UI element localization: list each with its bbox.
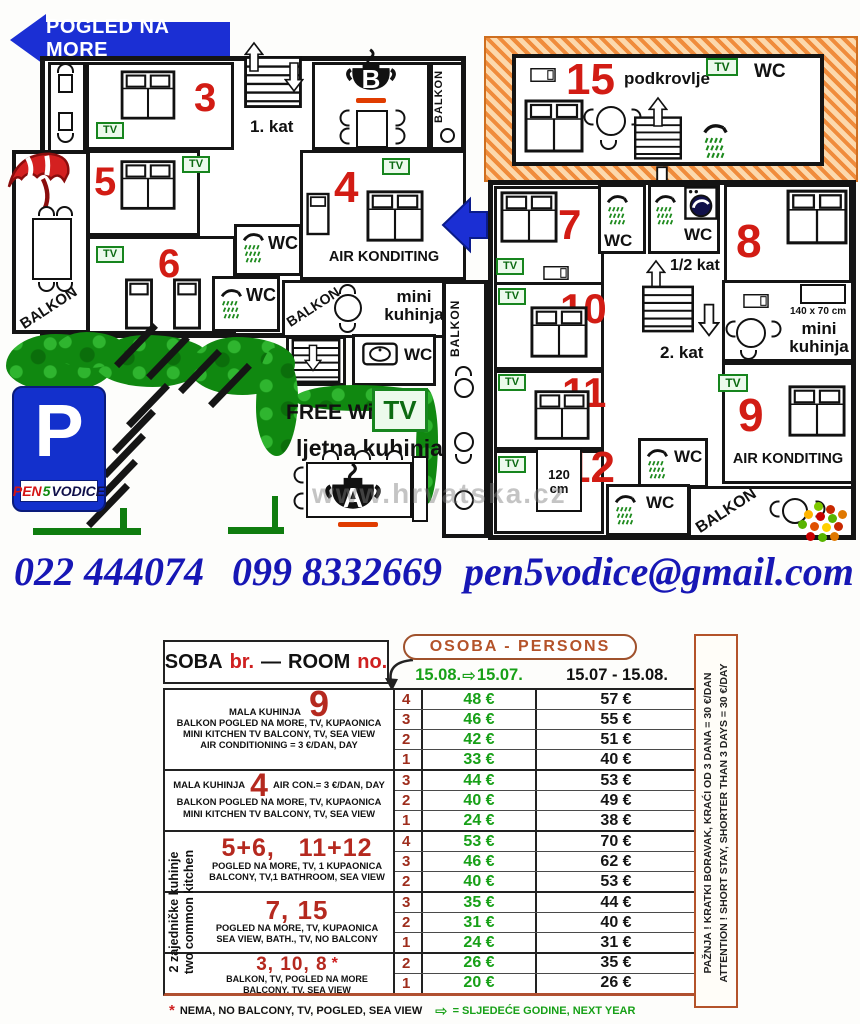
block-desc: 3, 10, 8 * BALKON, TV, POGLED NA MORE BA… bbox=[165, 954, 395, 993]
price-row: 120 €26 € bbox=[395, 974, 695, 993]
price-next-year: 24 € bbox=[421, 811, 537, 830]
chair-icon bbox=[354, 450, 371, 460]
chair-icon bbox=[38, 206, 55, 216]
date-from: 15.08. bbox=[415, 666, 461, 685]
mini-kitchen-label: mini kuhinja bbox=[788, 320, 850, 356]
double-bed-icon bbox=[366, 188, 424, 244]
stove-base-icon bbox=[338, 522, 378, 527]
price-next-year: 53 € bbox=[421, 832, 537, 851]
price-block-7-15: 7, 15 POGLED NA MORE, TV, KUPAONICA SEA … bbox=[165, 891, 695, 952]
date-next-year: 15.08. ⇨ 15.07. bbox=[403, 664, 535, 686]
round-table-icon bbox=[454, 378, 474, 398]
pension-name-strip: PEN5 VODICE bbox=[20, 480, 98, 502]
price-season: 38 € bbox=[537, 811, 695, 830]
chair-icon bbox=[57, 63, 74, 73]
block-rows: 335 €44 € 231 €40 € 124 €31 € bbox=[395, 893, 695, 952]
wc-label: WC bbox=[754, 62, 786, 82]
common-kitchen-hr: 2 zajedničke kuhinje bbox=[167, 833, 182, 991]
pension-name-5: 5 bbox=[43, 483, 51, 499]
block-rows: 226 €35 € 120 €26 € bbox=[395, 954, 695, 993]
shower-icon bbox=[700, 118, 730, 160]
persons-cell: 3 bbox=[395, 852, 421, 871]
price-next-year: 40 € bbox=[421, 791, 537, 810]
wc-label: WC bbox=[674, 448, 702, 466]
bed-140x70-label: 140 x 70 cm bbox=[790, 306, 846, 317]
price-next-year: 44 € bbox=[421, 771, 537, 790]
chair-icon bbox=[584, 109, 594, 126]
price-row: 448 €57 € bbox=[395, 690, 695, 710]
price-next-year: 20 € bbox=[421, 974, 537, 993]
block-number: 7, 15 bbox=[201, 897, 393, 923]
price-season: 62 € bbox=[537, 852, 695, 871]
persons-header: OSOBA - PERSONS bbox=[403, 634, 637, 660]
price-row: 335 €44 € bbox=[395, 893, 695, 913]
price-next-year: 26 € bbox=[421, 954, 537, 973]
wc-label: WC bbox=[268, 234, 298, 253]
short-stay-en: ATTENTION ! SHORT STAY, SHORTER THAN 3 D… bbox=[716, 643, 732, 1003]
double-bed-icon bbox=[118, 70, 178, 120]
pension-name-vodice: VODICE bbox=[51, 483, 105, 499]
persons-cell: 3 bbox=[395, 893, 421, 912]
asterisk: * bbox=[169, 1002, 175, 1019]
price-row: 344 €53 € bbox=[395, 771, 695, 791]
washing-machine-icon bbox=[684, 186, 718, 220]
price-row: 242 €51 € bbox=[395, 730, 695, 750]
room-5-number: 5 bbox=[94, 162, 116, 202]
chair-icon bbox=[340, 128, 350, 145]
balcony-label: BALKON bbox=[448, 288, 462, 368]
shower-icon bbox=[604, 190, 630, 226]
desc-line: BALKON, TV, POGLED NA MORE bbox=[201, 974, 393, 985]
parking-p-letter: P bbox=[14, 388, 104, 474]
price-season: 53 € bbox=[537, 872, 695, 891]
room-column-header: SOBA br. — ROOM no. bbox=[163, 640, 389, 684]
hedge bbox=[120, 508, 127, 532]
price-row: 124 €31 € bbox=[395, 933, 695, 952]
price-next-year: 40 € bbox=[421, 872, 537, 891]
shower-icon bbox=[218, 284, 244, 320]
date-high-season: 15.07 - 15.08. bbox=[539, 664, 695, 686]
price-row: 124 €38 € bbox=[395, 811, 695, 830]
common-kitchen-en: two common kitchen bbox=[182, 833, 197, 991]
common-kitchen-note: 2 zajedničke kuhinje two common kitchen bbox=[166, 832, 198, 992]
watermark: www.hrvatska.cz bbox=[312, 478, 567, 510]
single-bed-icon bbox=[306, 190, 330, 238]
floor-label-half: 1/2 kat bbox=[670, 258, 720, 275]
br-label: br. bbox=[230, 651, 254, 674]
block-desc: 7, 15 POGLED NA MORE, TV, KUPAONICA SEA … bbox=[165, 893, 395, 952]
block-rows: 453 €70 € 346 €62 € 240 €53 € bbox=[395, 832, 695, 891]
price-block-9: MALA KUHINJA 9 BALKON POGLED NA MORE, TV… bbox=[165, 690, 695, 769]
chair-icon bbox=[294, 467, 304, 484]
persons-cell: 4 bbox=[395, 832, 421, 851]
persons-cell: 2 bbox=[395, 872, 421, 891]
footnote-text: NEMA, NO BALCONY, TV, POGLED, SEA VIEW bbox=[180, 1005, 422, 1017]
balcony-label: BALKON bbox=[433, 66, 445, 126]
double-bed-icon bbox=[500, 190, 558, 244]
arrow-right-icon: ⇨ bbox=[462, 666, 476, 685]
chair-icon bbox=[294, 493, 304, 510]
chair-icon bbox=[726, 321, 736, 338]
attic-label: podkrovlje bbox=[624, 70, 710, 88]
price-row: 346 €55 € bbox=[395, 710, 695, 730]
persons-cell: 4 bbox=[395, 690, 421, 709]
sea-view-banner: POGLED NA MORE bbox=[46, 22, 230, 56]
phone-1-ghost: 022 444074 bbox=[210, 597, 400, 603]
scanned-leaflet: POGLED NA MORE 3 TV 1. kat B BALKON bbox=[0, 0, 860, 1024]
stairs-icon bbox=[642, 278, 694, 340]
room-15-number: 15 bbox=[566, 58, 615, 102]
price-row: 133 €40 € bbox=[395, 750, 695, 769]
double-bed-icon bbox=[524, 98, 584, 154]
price-season: 57 € bbox=[537, 690, 695, 709]
arrow-down-icon bbox=[304, 342, 322, 374]
desc-line: AIR CONDITIONING = 3 €/DAN, DAY bbox=[165, 740, 393, 751]
persons-cell: 1 bbox=[395, 974, 421, 993]
price-season: 53 € bbox=[537, 771, 695, 790]
price-season: 40 € bbox=[537, 913, 695, 932]
legend: ⇨ = SLJEDEĆE GODINE, NEXT YEAR bbox=[435, 1002, 635, 1020]
arrow-up-icon bbox=[244, 40, 264, 74]
desc-line: MINI KITCHEN TV BALCONY, TV, SEA VIEW bbox=[165, 729, 393, 740]
floor-label-1kat: 1. kat bbox=[250, 118, 293, 136]
block-desc: 5+6, 11+12 POGLED NA MORE, TV, 1 KUPAONI… bbox=[165, 832, 395, 891]
table-icon bbox=[58, 74, 73, 93]
stove-base-icon bbox=[356, 98, 386, 103]
price-season: 49 € bbox=[537, 791, 695, 810]
single-bed-icon bbox=[124, 278, 154, 330]
round-table-icon bbox=[454, 432, 474, 452]
price-block-5-6-11-12: 5+6, 11+12 POGLED NA MORE, TV, 1 KUPAONI… bbox=[165, 830, 695, 891]
clipped-contact-line: 022 444074 099 8332669 pen5vodice@gmail.… bbox=[150, 597, 650, 612]
price-row: 346 €62 € bbox=[395, 852, 695, 872]
washbasin-icon bbox=[362, 342, 398, 366]
chair-icon bbox=[770, 501, 780, 518]
phone-2: 099 8332669 bbox=[232, 548, 442, 595]
umbrella-icon bbox=[4, 146, 76, 214]
tv-badge: TV bbox=[498, 374, 526, 391]
desc-line: MINI KITCHEN TV BALCONY, TV, SEA VIEW bbox=[165, 809, 393, 820]
wc-label: WC bbox=[684, 226, 712, 244]
price-next-year: 31 € bbox=[421, 913, 537, 932]
price-season: 40 € bbox=[537, 750, 695, 769]
chair-icon bbox=[56, 206, 73, 216]
phone-1: 022 444074 bbox=[14, 548, 204, 595]
persons-cell: 2 bbox=[395, 913, 421, 932]
block-prefix: MALA KUHINJA bbox=[173, 780, 245, 791]
desc-line: BALCONY, TV, SEA VIEW bbox=[201, 985, 393, 993]
hedge bbox=[272, 496, 278, 530]
shower-icon bbox=[612, 490, 638, 526]
persons-cell: 2 bbox=[395, 954, 421, 973]
room-label: ROOM bbox=[288, 651, 350, 674]
price-next-year: 35 € bbox=[421, 893, 537, 912]
tv-badge: TV bbox=[182, 156, 210, 173]
persons-cell: 1 bbox=[395, 811, 421, 830]
room-4-number: 4 bbox=[334, 166, 358, 210]
phone-2-ghost: 099 8332669 bbox=[446, 597, 650, 603]
price-row: 231 €40 € bbox=[395, 913, 695, 933]
tv-badge: TV bbox=[706, 58, 738, 76]
block-number: 3, 10, 8 bbox=[256, 955, 327, 974]
persons-cell: 2 bbox=[395, 730, 421, 749]
floor-label-2kat: 2. kat bbox=[660, 344, 703, 362]
tv-badge: TV bbox=[496, 258, 524, 275]
price-table-body: MALA KUHINJA 9 BALKON POGLED NA MORE, TV… bbox=[163, 688, 697, 996]
price-next-year: 42 € bbox=[421, 730, 537, 749]
arrow-right-icon: ⇨ bbox=[435, 1002, 448, 1020]
bed-140x70-icon bbox=[800, 284, 846, 304]
kitchen-b-letter: B bbox=[342, 64, 400, 95]
price-block-3-10-8: 3, 10, 8 * BALKON, TV, POGLED NA MORE BA… bbox=[165, 952, 695, 993]
short-stay-hr: PAŽNJA ! KRATKI BORAVAK, KRAĆI OD 3 DANA… bbox=[700, 643, 716, 1003]
price-next-year: 33 € bbox=[421, 750, 537, 769]
price-season: 26 € bbox=[537, 974, 695, 993]
price-block-4: MALA KUHINJA 4 AIR CON.= 3 €/DAN, DAY BA… bbox=[165, 769, 695, 830]
round-table-icon bbox=[440, 128, 455, 143]
soba-label: SOBA bbox=[165, 651, 223, 674]
double-bed-icon bbox=[530, 304, 588, 360]
sea-direction-arrow-icon bbox=[440, 192, 490, 258]
price-table: SOBA br. — ROOM no. OSOBA - PERSONS 15.0… bbox=[163, 632, 699, 1024]
arrow-down-icon bbox=[698, 300, 720, 340]
wc-label: WC bbox=[246, 286, 276, 305]
short-stay-note: PAŽNJA ! KRATKI BORAVAK, KRAĆI OD 3 DANA… bbox=[694, 634, 738, 1008]
shower-icon bbox=[240, 228, 266, 264]
tv-badge: TV bbox=[96, 122, 124, 139]
air-conditioning-label: AIR KONDITING bbox=[308, 250, 460, 265]
block-desc: MALA KUHINJA 9 BALKON POGLED NA MORE, TV… bbox=[165, 690, 395, 769]
table-icon bbox=[356, 110, 388, 148]
block-number: 9 bbox=[309, 690, 329, 718]
persons-cell: 3 bbox=[395, 771, 421, 790]
block-number: 4 bbox=[250, 773, 268, 798]
double-bed-icon bbox=[788, 380, 846, 442]
room-9-number: 9 bbox=[738, 392, 764, 438]
air-conditioning-label: AIR KONDITING bbox=[726, 452, 850, 467]
price-next-year: 46 € bbox=[421, 710, 537, 729]
double-bed-icon bbox=[534, 388, 590, 442]
chair-icon bbox=[455, 366, 472, 376]
legend-text: = SLJEDEĆE GODINE, NEXT YEAR bbox=[453, 1005, 636, 1017]
table-icon bbox=[58, 112, 73, 131]
persons-cell: 2 bbox=[395, 791, 421, 810]
block-rows: 344 €53 € 240 €49 € 124 €38 € bbox=[395, 771, 695, 830]
price-season: 44 € bbox=[537, 893, 695, 912]
wc-label: WC bbox=[604, 232, 632, 250]
price-row: 226 €35 € bbox=[395, 954, 695, 974]
parking-sign: P PEN5 VODICE bbox=[12, 386, 106, 512]
price-row: 240 €53 € bbox=[395, 872, 695, 891]
price-next-year: 24 € bbox=[421, 933, 537, 952]
tv-badge: TV bbox=[96, 246, 124, 263]
email: pen5vodice@gmail.com bbox=[464, 548, 854, 595]
wc-label: WC bbox=[404, 346, 432, 364]
asterisk: * bbox=[332, 955, 338, 973]
room-8-number: 8 bbox=[736, 218, 762, 264]
block-number: 5+6, 11+12 bbox=[201, 836, 393, 861]
price-row: 240 €49 € bbox=[395, 791, 695, 811]
price-row: 453 €70 € bbox=[395, 832, 695, 852]
shower-icon bbox=[652, 188, 678, 228]
desc-line: BALCONY, TV,1 BATHROOM, SEA VIEW bbox=[201, 872, 393, 883]
logo-dots bbox=[796, 502, 848, 548]
double-bed-icon bbox=[786, 188, 848, 246]
chair-icon bbox=[386, 450, 403, 460]
tv-badge: TV bbox=[498, 288, 526, 305]
price-season: 51 € bbox=[537, 730, 695, 749]
desc-line: BALKON POGLED NA MORE, TV, KUPAONICA bbox=[165, 797, 393, 808]
block-prefix: MALA KUHINJA bbox=[229, 707, 301, 718]
shower-icon bbox=[644, 444, 670, 480]
round-table-icon bbox=[736, 318, 766, 348]
desc-line: POGLED NA MORE, TV, KUPAONICA bbox=[201, 923, 393, 934]
wc-label: WC bbox=[646, 494, 674, 512]
room-7-number: 7 bbox=[558, 204, 581, 246]
round-table-icon bbox=[596, 106, 626, 136]
price-next-year: 46 € bbox=[421, 852, 537, 871]
room-3-number: 3 bbox=[194, 78, 216, 118]
date-to: 15.07. bbox=[477, 666, 523, 685]
single-bed-icon bbox=[172, 278, 202, 330]
tv-badge-large: TV bbox=[372, 388, 428, 432]
price-season: 55 € bbox=[537, 710, 695, 729]
persons-cell: 1 bbox=[395, 750, 421, 769]
price-season: 31 € bbox=[537, 933, 695, 952]
arrow-up-icon bbox=[648, 96, 668, 128]
chair-icon bbox=[322, 450, 339, 460]
price-season: 70 € bbox=[537, 832, 695, 851]
floor-plan: POGLED NA MORE 3 TV 1. kat B BALKON bbox=[0, 0, 860, 545]
chair-icon bbox=[340, 110, 350, 127]
persons-cell: 3 bbox=[395, 710, 421, 729]
chair-icon bbox=[339, 284, 356, 294]
desc-line: POGLED NA MORE, TV, 1 KUPAONICA bbox=[201, 861, 393, 872]
block-suffix: AIR CON.= 3 €/DAN, DAY bbox=[273, 780, 385, 791]
tv-badge: TV bbox=[498, 456, 526, 473]
round-table-icon bbox=[334, 294, 362, 322]
single-bed-icon bbox=[530, 52, 556, 98]
block-desc: MALA KUHINJA 4 AIR CON.= 3 €/DAN, DAY BA… bbox=[165, 771, 395, 830]
pension-name-pen: PEN bbox=[13, 483, 42, 499]
persons-cell: 1 bbox=[395, 933, 421, 952]
block-rows: 448 €57 € 346 €55 € 242 €51 € 133 €40 € bbox=[395, 690, 695, 769]
desc-line: SEA VIEW, BATH., TV, NO BALCONY bbox=[201, 934, 393, 945]
tv-badge: TV bbox=[382, 158, 410, 175]
table-icon bbox=[32, 218, 72, 280]
price-season: 35 € bbox=[537, 954, 695, 973]
double-bed-icon bbox=[120, 158, 176, 212]
arrow-down-icon bbox=[284, 60, 304, 94]
dash: — bbox=[261, 651, 281, 674]
price-next-year: 48 € bbox=[421, 690, 537, 709]
desc-line: BALKON POGLED NA MORE, TV, KUPAONICA bbox=[165, 718, 393, 729]
